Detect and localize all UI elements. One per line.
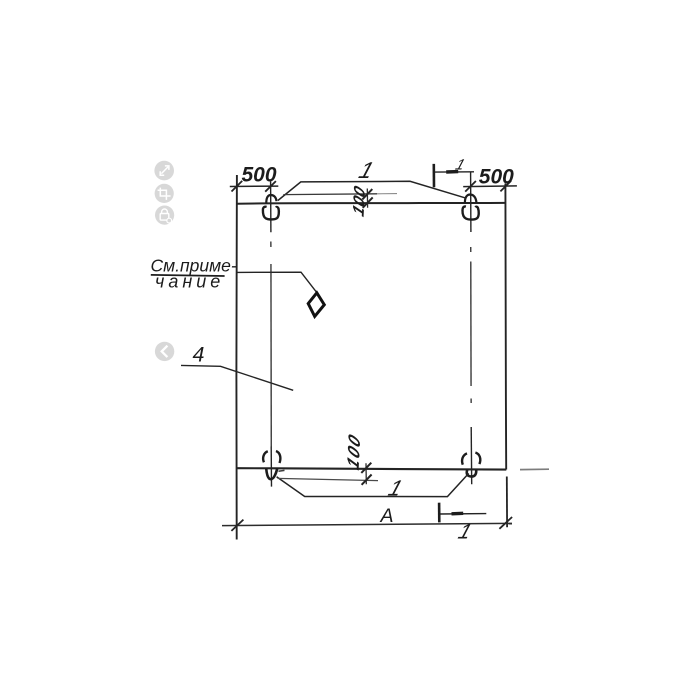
svg-text:А: А [380, 505, 394, 527]
svg-text:1: 1 [453, 157, 467, 174]
svg-text:500: 500 [242, 164, 277, 187]
svg-text:1: 1 [356, 158, 377, 183]
svg-text:100: 100 [349, 182, 368, 219]
svg-text:4: 4 [193, 343, 205, 367]
svg-text:500: 500 [479, 166, 514, 189]
svg-text:100: 100 [344, 429, 364, 473]
